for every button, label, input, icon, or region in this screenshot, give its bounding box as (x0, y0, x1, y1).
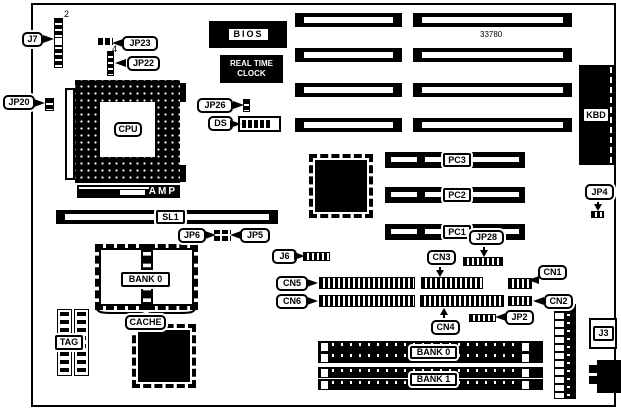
jp26-jumper (243, 99, 250, 112)
jp6-jp5-jumper (214, 230, 231, 241)
board-part-number: 33780 (480, 30, 502, 39)
amp-socket-bar: AMP (77, 185, 180, 198)
pc1-label: PC1 (443, 225, 471, 239)
jp23-block (98, 38, 113, 49)
jp2-jumper (469, 314, 496, 322)
simm-clip (521, 368, 530, 378)
j7-pin2-label: 2 (64, 9, 69, 19)
jp28-header (463, 257, 503, 266)
ds-pointer (230, 120, 241, 128)
simm-clip (521, 342, 530, 352)
j7-label: J7 (22, 32, 43, 47)
jp26-pointer (233, 101, 244, 109)
chipset-qfp-1 (315, 160, 367, 212)
pci-key (425, 192, 441, 197)
cn2-pointer (533, 297, 544, 305)
cache-label: CACHE (125, 315, 166, 330)
cache-controller-qfp (138, 330, 190, 382)
cn4-pointer (440, 308, 448, 315)
cn1-pointer (528, 276, 539, 284)
j6-pointer (294, 252, 305, 260)
cn4-connector (420, 295, 504, 307)
isa-slot-4-left (295, 118, 402, 132)
j7-header-gap (55, 38, 62, 45)
jp28-pointer (480, 250, 488, 257)
amp-brand-label: AMP (149, 187, 177, 197)
edge-port-connector (597, 360, 621, 393)
pci-key (425, 157, 441, 162)
rtc-chip: REAL TIMECLOCK (220, 55, 283, 83)
cn2-label: CN2 (544, 294, 573, 309)
power-body (565, 304, 576, 399)
motherboard-diagram: J7 2 4 JP23 JP22 JP20 CPU AMP BIOS REAL … (0, 0, 621, 415)
sl1-label: SL1 (156, 210, 185, 224)
pc2-label: PC2 (443, 188, 471, 202)
jp26-label: JP26 (197, 98, 233, 113)
simm-bank0-label: BANK 0 (410, 346, 457, 359)
jp22-pointer (115, 59, 126, 67)
jp20-label: JP20 (3, 95, 35, 110)
ds-segments (242, 120, 272, 128)
cn6-pointer (307, 297, 318, 305)
jp2-label: JP2 (505, 310, 534, 325)
jp2-pointer (495, 313, 506, 321)
jp22-label: JP22 (127, 56, 160, 71)
cn5-label: CN5 (276, 276, 308, 291)
jp4-label: JP4 (585, 184, 614, 200)
jp6-label: JP6 (178, 228, 206, 243)
power-dots (567, 306, 570, 397)
j3-label: J3 (593, 326, 614, 341)
power-connector (554, 304, 576, 399)
jp4-pointer (594, 204, 602, 211)
simm-clip (320, 342, 329, 352)
cn4-label: CN4 (431, 320, 460, 335)
cpu-tab-top (180, 83, 186, 102)
cpu-socket-lever (65, 88, 75, 180)
amp-bar-stripe (79, 187, 149, 189)
cn5-pointer (307, 279, 318, 287)
jp4-jumper (591, 211, 604, 218)
jp5-pointer (230, 231, 241, 239)
tag-label: TAG (55, 335, 83, 350)
kbd-dashed-line (610, 67, 612, 163)
cn3-label: CN3 (427, 250, 456, 265)
pci-key (391, 157, 417, 162)
cpu-tab-bottom (180, 165, 186, 182)
isa-slot-3-left (295, 83, 402, 97)
pci-key (425, 229, 441, 234)
jumper-gap (214, 234, 231, 236)
bios-label: BIOS (228, 28, 269, 41)
simm-clip (320, 380, 329, 390)
cn6-connector (319, 295, 415, 307)
j6-header (303, 252, 330, 261)
isa-slot-4-right (413, 118, 572, 132)
jp6-pointer (205, 231, 216, 239)
isa-slot-2-left (295, 48, 402, 62)
cn5-connector (319, 277, 415, 289)
pci-key (471, 192, 519, 197)
simm-clip (320, 368, 329, 378)
pci-key (471, 157, 519, 162)
cn6-label: CN6 (276, 294, 308, 309)
jp22-header (107, 51, 114, 76)
cn2-header (508, 296, 532, 306)
cn3-pointer (436, 270, 444, 277)
simm-bank1-label: BANK 1 (410, 373, 457, 386)
amp-bar-slot (120, 190, 145, 195)
isa-slot-2-right (413, 48, 572, 62)
pc3-label: PC3 (443, 153, 471, 167)
j7-pointer (43, 35, 54, 43)
isa-slot-1-right (413, 13, 572, 27)
ds-resistor-pack (238, 116, 281, 132)
kbd-label: KBD (583, 108, 609, 122)
isa-slot-1-left (295, 13, 402, 27)
edge-port-pin-bottom (589, 376, 597, 384)
pci-key (391, 192, 417, 197)
simm-pins (332, 369, 517, 372)
jp20-pointer (34, 99, 45, 107)
pci-key (391, 229, 417, 234)
simm-clip (521, 353, 530, 363)
jp23-label: JP23 (122, 36, 158, 51)
jp5-label: JP5 (240, 228, 270, 243)
simm-clip (521, 380, 530, 390)
isa-slot-3-right (413, 83, 572, 97)
rtc-label: REAL TIMECLOCK (230, 59, 273, 80)
edge-port-pin-top (589, 365, 597, 373)
simm-clip (320, 353, 329, 363)
jp20-jumper (45, 98, 54, 111)
cn3-connector (421, 277, 483, 289)
cache-bank0-label: BANK 0 (121, 272, 170, 287)
cpu-label: CPU (114, 122, 142, 137)
bios-chip: BIOS (209, 21, 287, 48)
cn1-label: CN1 (538, 265, 567, 280)
jp23-pointer (112, 39, 123, 47)
j7-text: J7 (27, 35, 37, 44)
jp28-label: JP28 (469, 230, 504, 245)
power-pin-column (554, 304, 565, 399)
